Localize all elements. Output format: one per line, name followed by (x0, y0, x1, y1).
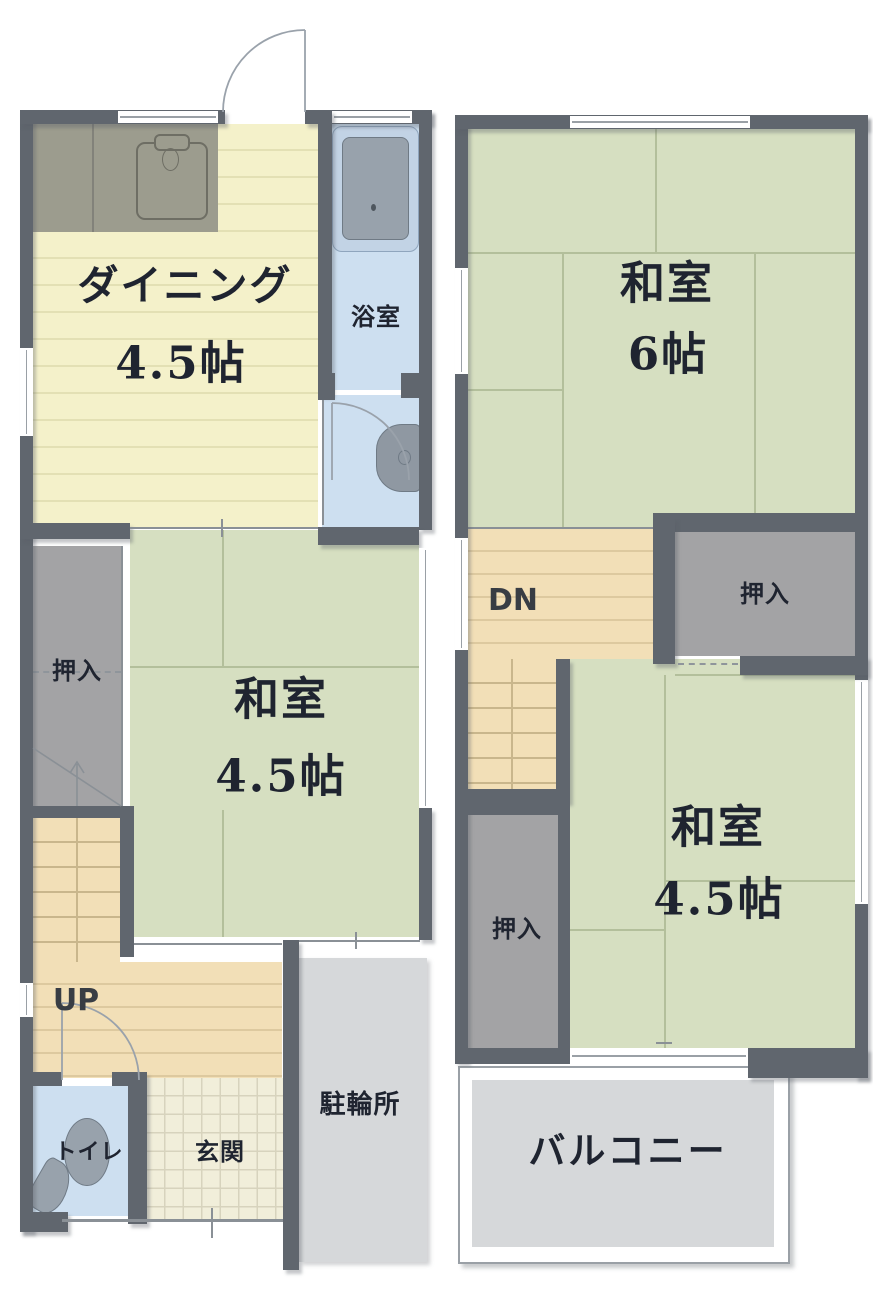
edge-line (299, 940, 420, 942)
label-bicycle-parking: 駐輪所 (319, 1092, 400, 1118)
tatami-line (468, 389, 563, 391)
label-balcony: バルコニー (528, 1133, 727, 1170)
wall (556, 659, 570, 802)
label-washitsu-1f: 和室 (234, 677, 328, 722)
label-dining: ダイニング (78, 266, 293, 307)
label-toilet: トイレ (54, 1141, 123, 1163)
tatami-line (664, 675, 666, 1048)
window-bath (332, 111, 412, 123)
stairs-2f-centerline (511, 659, 513, 789)
floorplan-canvas: ダイニング 4.5帖 浴室 押入 和室 4.5帖 UP トイレ 玄関 駐輪所 和… (0, 0, 873, 1304)
entrance-threshold (62, 1219, 283, 1222)
closet-1f-front (121, 546, 123, 806)
window-right-45jo (855, 680, 868, 904)
edge-tick (355, 932, 357, 949)
bathtub-inner (342, 137, 409, 240)
window-left-dining (20, 348, 33, 436)
sliding-door-tick (221, 519, 223, 537)
room-washitsu-1f (130, 530, 419, 937)
window-left-landing (455, 538, 468, 650)
wall (120, 806, 134, 957)
wall (318, 373, 335, 400)
window-top-6jo (570, 116, 750, 128)
tatami-line (222, 530, 224, 666)
window-left-6jo (455, 268, 468, 374)
balcony-door-tick (656, 1042, 672, 1044)
wall (20, 1072, 62, 1086)
wall (318, 527, 419, 545)
label-washitsu-45-2f-size: 4.5帖 (653, 877, 784, 922)
tatami-line (570, 929, 666, 931)
label-dining-size: 4.5帖 (115, 341, 246, 386)
bathtub-drain-dot (371, 204, 376, 211)
label-closet-1f: 押入 (52, 659, 102, 683)
wall (20, 806, 133, 818)
wall (401, 373, 431, 398)
window-kitchen (118, 111, 218, 123)
wall (748, 1048, 868, 1078)
window-left-hall (20, 983, 33, 1017)
wall (455, 1048, 570, 1064)
wall (419, 808, 432, 940)
window-washitsu-1f (419, 548, 432, 808)
door-arc-top-entry (223, 30, 305, 112)
sliding-door-washitsu-hall (134, 943, 282, 945)
wall (20, 523, 130, 539)
tatami-line (222, 810, 224, 937)
sliding-door-6jo-landing (468, 527, 654, 529)
tatami-line (754, 252, 756, 528)
label-washitsu-1f-size: 4.5帖 (215, 754, 346, 799)
entrance-door-tick (211, 1208, 213, 1238)
wall (20, 1212, 68, 1232)
wall (318, 110, 332, 395)
kitchen-counter-divider (92, 124, 94, 232)
wall (653, 513, 868, 532)
wall (558, 802, 570, 1062)
wall (419, 110, 432, 530)
label-closet-2f-upper: 押入 (740, 582, 790, 606)
wall (283, 940, 299, 1270)
toilet-fixture-knob (398, 450, 411, 465)
hall-1f (33, 962, 282, 1078)
wall (20, 110, 33, 1232)
kitchen-drain (162, 148, 179, 171)
stairs-1f-centerline (76, 818, 78, 962)
tatami-line (655, 129, 657, 252)
wall (455, 789, 570, 815)
wall (740, 656, 868, 675)
tatami-line (468, 252, 855, 254)
label-bathroom: 浴室 (351, 305, 401, 329)
tatami-line (130, 666, 419, 668)
label-stairs-up: UP (53, 986, 99, 1016)
doorway-edge (322, 400, 324, 525)
label-washitsu-6-2f-size: 6帖 (628, 332, 708, 377)
wall (653, 518, 675, 664)
wall (112, 1072, 128, 1086)
balcony-door (570, 1048, 748, 1064)
label-washitsu-45-2f: 和室 (671, 805, 765, 850)
closet-2f-upper-front (678, 663, 738, 665)
label-entrance: 玄関 (195, 1140, 245, 1164)
wall (855, 115, 868, 1078)
label-closet-2f-lower: 押入 (492, 917, 542, 941)
wall (128, 1072, 147, 1224)
label-stairs-down: DN (488, 586, 538, 616)
label-washitsu-6-2f: 和室 (620, 261, 714, 306)
room-washitsu-45-2f (570, 659, 855, 1048)
sliding-door-dining-washitsu (130, 527, 318, 529)
